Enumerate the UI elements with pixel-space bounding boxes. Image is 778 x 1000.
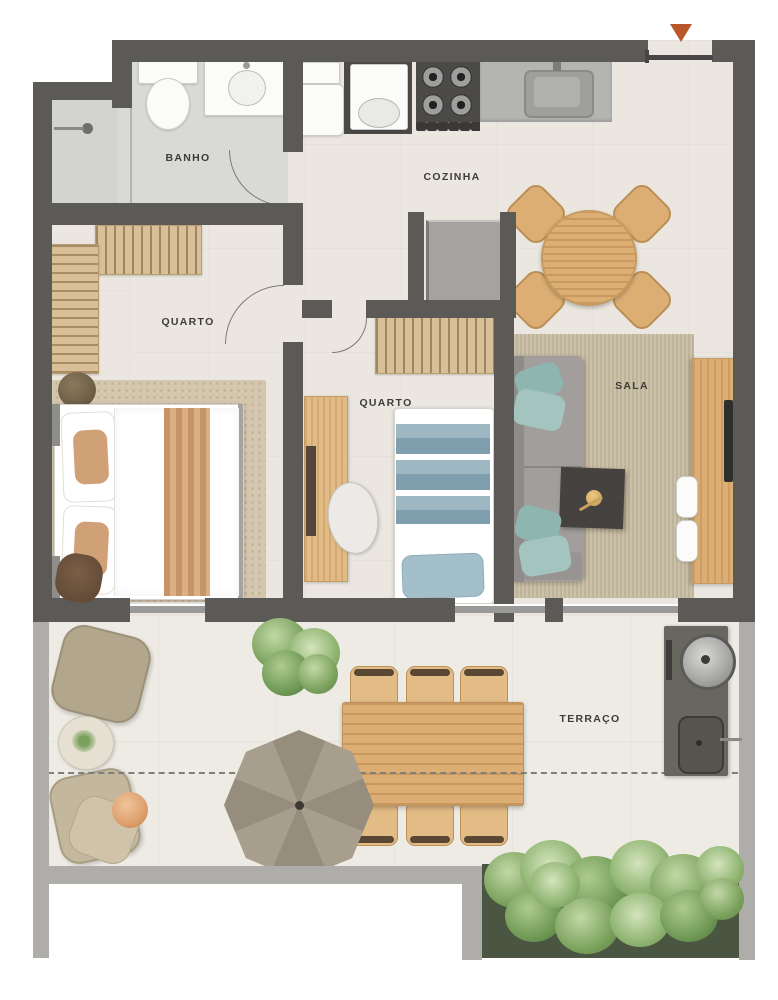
entry-door-leaf (647, 55, 713, 60)
wall-right (733, 40, 755, 622)
floor-plan: BANHO COZINHA QUARTO QUARTO SALA TERRAÇO (0, 0, 778, 1000)
ball-cushion (112, 792, 148, 828)
wall-bath-right (283, 40, 303, 152)
planter-plant (530, 862, 580, 908)
sliding-door-bedroom2 (455, 604, 545, 613)
terrace-chair (460, 800, 508, 846)
tv (724, 400, 733, 482)
sliding-door-bedroom1 (130, 604, 205, 613)
wall-hall-upper (283, 225, 303, 285)
wall-fridge-stub-right (500, 212, 516, 306)
wall-left (33, 82, 52, 622)
room-label-quarto1: QUARTO (161, 316, 214, 328)
vanity-basin (228, 70, 266, 106)
duvet-stripe (164, 408, 210, 596)
entry-door-handle (645, 50, 649, 63)
terrace-wall-left (33, 622, 49, 958)
stove-burner (450, 66, 472, 88)
terrace-dining-table (342, 702, 524, 806)
desk-shelf-dark (306, 446, 316, 536)
terrace-chair (406, 800, 454, 846)
side-table-plant (72, 730, 96, 752)
room-label-quarto2: QUARTO (359, 397, 412, 409)
wall-fridge-stub-left (408, 212, 424, 306)
projection-dashed-line (48, 772, 738, 774)
chair-backrest (410, 836, 450, 843)
umbrella-pole (295, 801, 304, 810)
terrace-wall-mid (462, 866, 482, 960)
wall-bath-bottom (33, 203, 303, 225)
accent-pillow (73, 429, 110, 485)
room-label-banho: BANHO (166, 152, 211, 164)
wall-hall-lower (283, 342, 303, 622)
wall-bedroom2-top-right (366, 300, 516, 318)
chair-backrest (410, 669, 450, 676)
wall-bottom-c (545, 598, 563, 622)
washing-machine-drum (358, 98, 400, 128)
bed-single-pillow (401, 553, 484, 600)
chair-backrest (354, 669, 394, 676)
toilet-bowl (146, 78, 190, 130)
room-label-terraco: TERRAÇO (559, 713, 620, 725)
chair-backrest (464, 669, 504, 676)
wall-bedroom2-sala (494, 318, 514, 622)
grill-knob (701, 655, 710, 664)
sliding-door-sala (563, 604, 678, 613)
terrace-wall-bottom (33, 866, 480, 884)
chair-backrest (464, 836, 504, 843)
shower-arm (54, 127, 84, 130)
bed-single-blanket (396, 424, 490, 524)
stove-knobs (416, 122, 480, 131)
side-stool (676, 520, 698, 562)
terrace-plant (298, 654, 338, 694)
grill-faucet (720, 738, 742, 741)
shower-glass-line (130, 108, 132, 205)
stove-burner (422, 94, 444, 116)
room-label-sala: SALA (615, 380, 649, 392)
kitchen-sink-basin (534, 77, 580, 107)
wall-bottom-d (678, 598, 755, 622)
wall-top (112, 40, 648, 62)
side-stool (676, 476, 698, 518)
dining-table-round (541, 210, 637, 306)
basket (58, 372, 96, 408)
wardrobe-hanging (375, 316, 502, 374)
wall-bedroom2-top-left (302, 300, 332, 318)
closet-shelves (48, 244, 99, 374)
planter-plant (555, 898, 619, 954)
planter-plant (700, 878, 744, 920)
refrigerator (426, 220, 503, 302)
grill-sink-drain (696, 740, 702, 746)
wall-shower-divider (112, 40, 132, 108)
grill-handle (666, 640, 672, 680)
closet-hanging (95, 225, 202, 275)
terrace-wall-right (739, 622, 755, 960)
entrance-arrow-icon (670, 24, 692, 42)
stove-burner (422, 66, 444, 88)
floor-shower (48, 96, 118, 208)
stove-burner (450, 94, 472, 116)
room-label-cozinha: COZINHA (424, 171, 481, 183)
vanity-faucet (243, 62, 250, 69)
wall-bottom-b (205, 598, 455, 622)
